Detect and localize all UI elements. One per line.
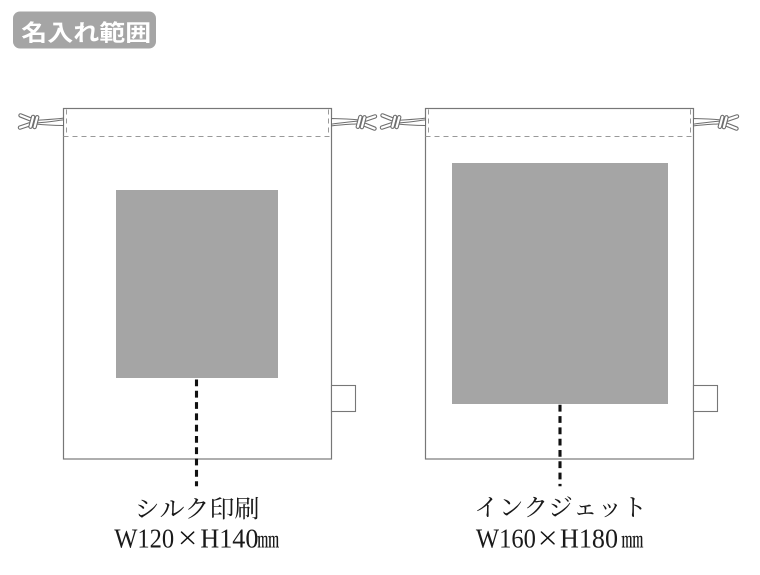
svg-text:W120: W120 — [114, 524, 174, 554]
svg-text:H180: H180 — [560, 524, 618, 554]
svg-text:H140: H140 — [200, 524, 258, 554]
svg-text:W160: W160 — [476, 524, 536, 554]
